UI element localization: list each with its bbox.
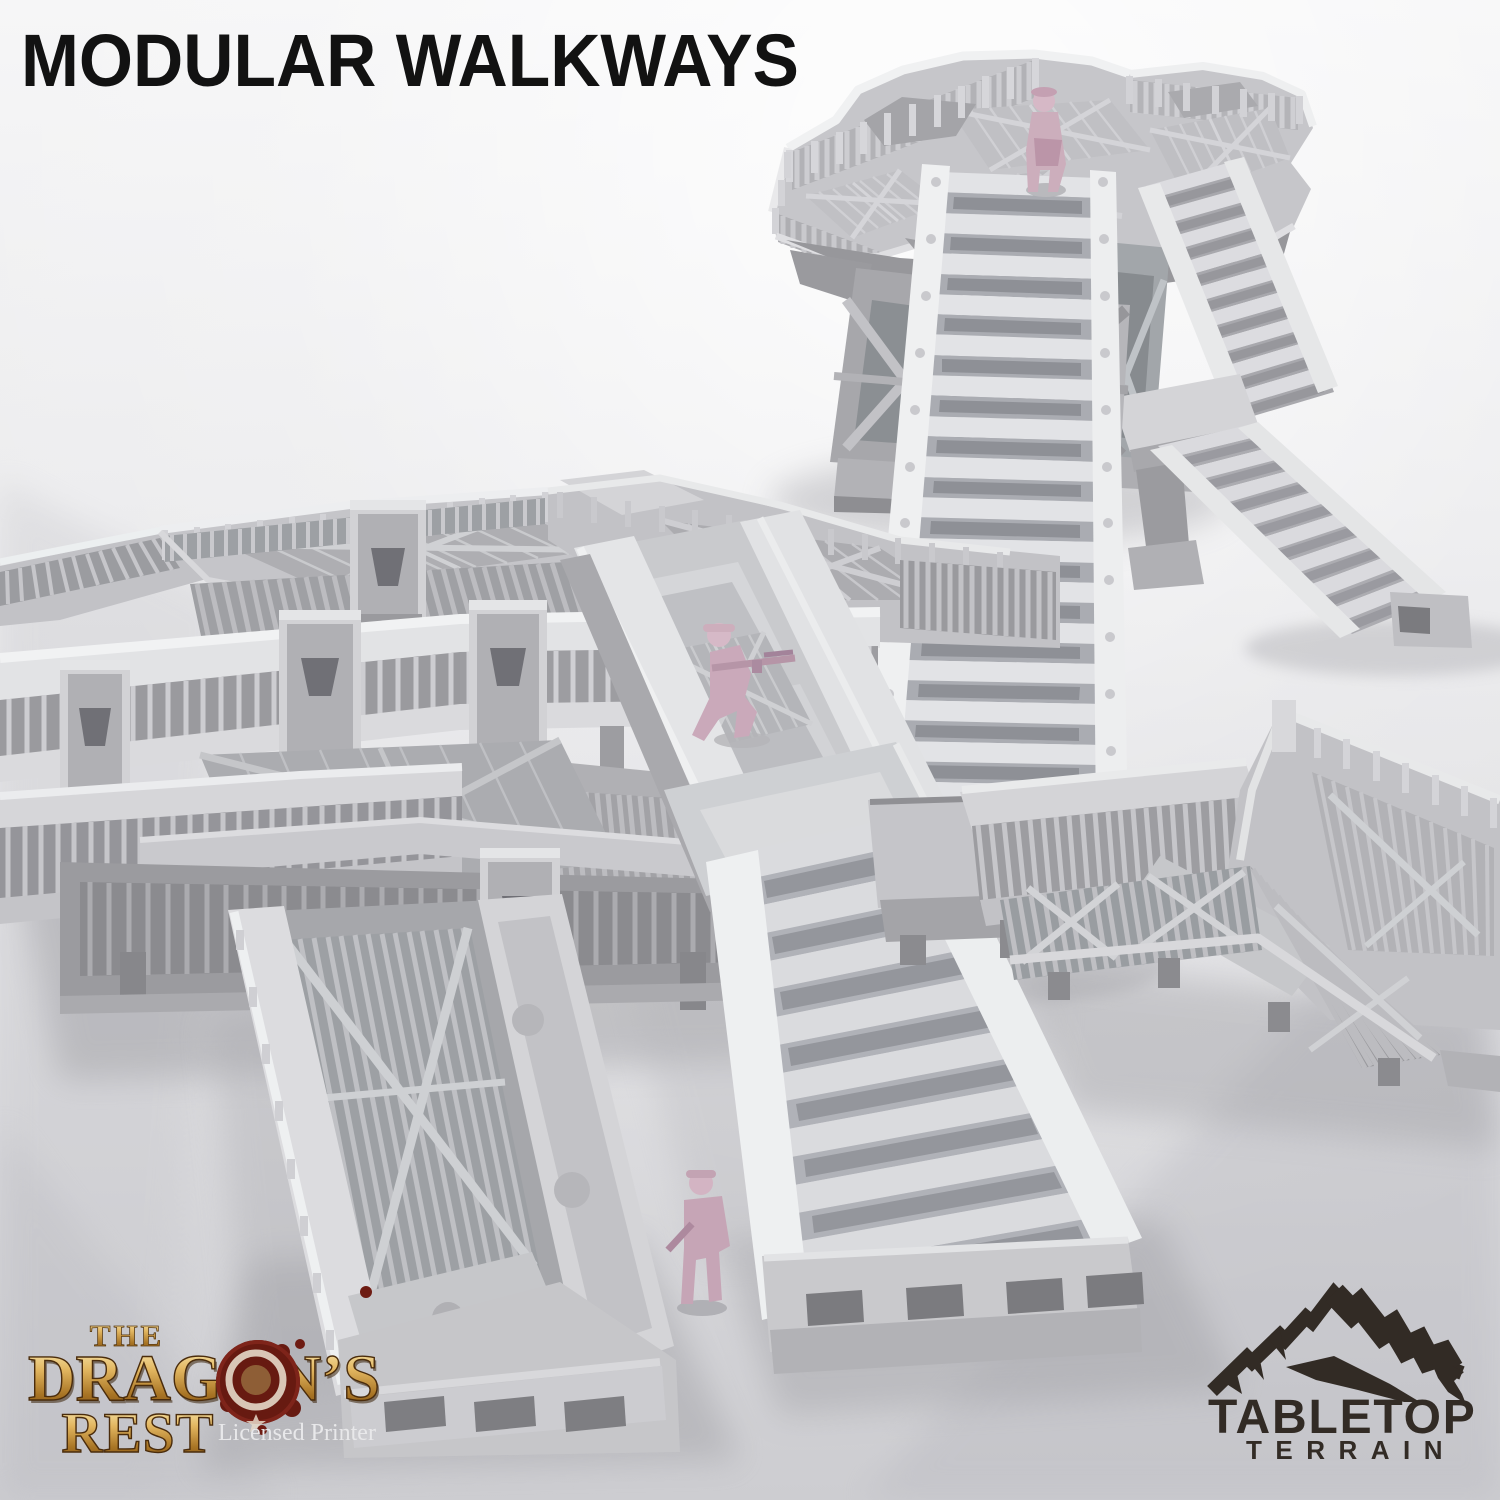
svg-text:Licensed Printer: Licensed Printer [218,1420,376,1446]
svg-text:MODULAR WALKWAYS: MODULAR WALKWAYS [21,20,799,102]
svg-text:REST: REST [62,1402,215,1465]
svg-text:TERRAIN: TERRAIN [1246,1435,1456,1465]
